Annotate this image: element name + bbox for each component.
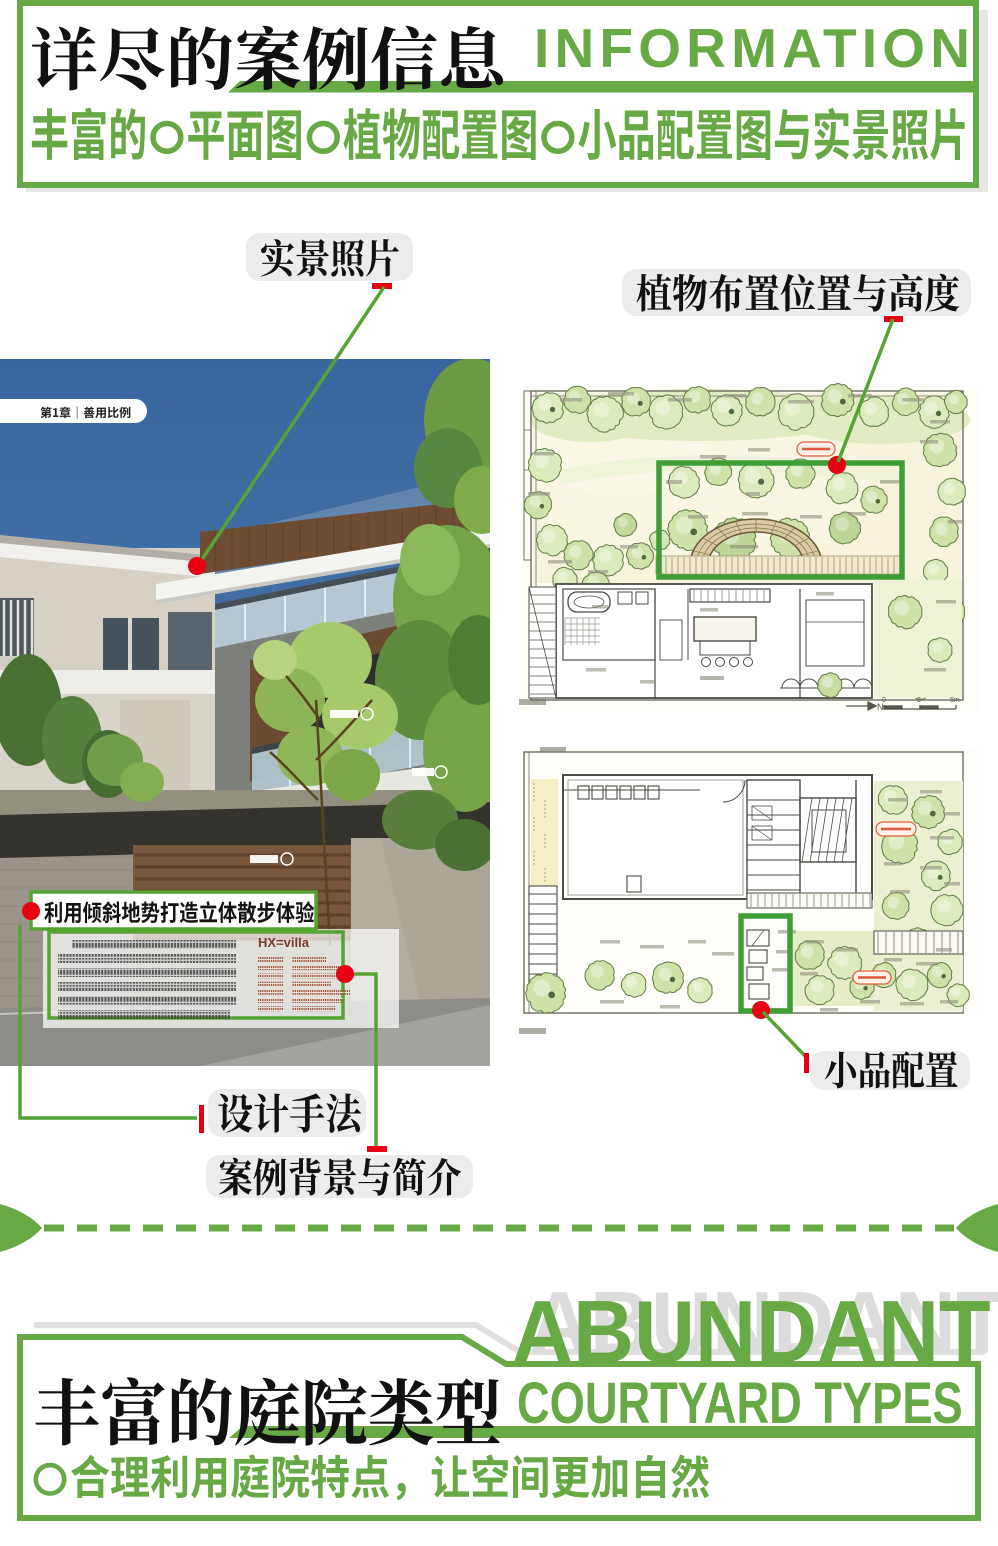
svg-text:ABUNDANT: ABUNDANT	[512, 1283, 991, 1381]
svg-text:3: 3	[917, 697, 921, 704]
svg-text:5m: 5m	[950, 697, 960, 704]
svg-text:HX=villa: HX=villa	[258, 935, 310, 950]
svg-text:COURTYARD TYPES: COURTYARD TYPES	[517, 1372, 963, 1437]
svg-text:0: 0	[882, 697, 886, 704]
svg-text:INFORMATION: INFORMATION	[534, 17, 975, 79]
